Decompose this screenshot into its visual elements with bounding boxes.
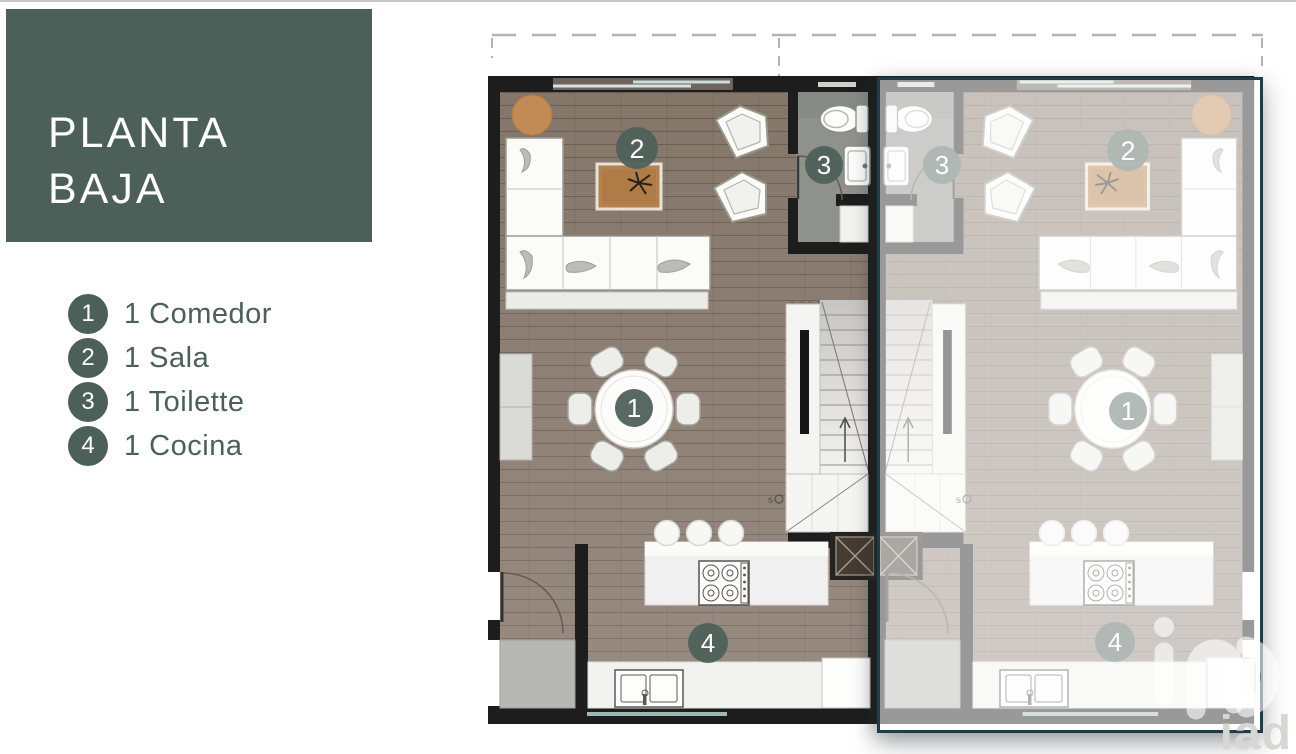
svg-text:s: s — [768, 495, 773, 506]
svg-text:3: 3 — [817, 150, 831, 180]
marker-cocina-left: 4 — [688, 623, 728, 663]
marker-comedor-left: 1 — [615, 389, 653, 427]
svg-text:4: 4 — [701, 628, 715, 658]
svg-text:2: 2 — [629, 134, 644, 164]
floor-plan-page: PLANTA BAJA 1 1 Comedor 2 1 Sala 3 1 Toi… — [0, 0, 1296, 754]
marker-sala-left: 2 — [616, 127, 658, 169]
marker-toilette-left: 3 — [805, 146, 843, 184]
svg-text:1: 1 — [627, 393, 641, 423]
lot-boundary-dashes — [492, 35, 1263, 76]
right-unit-selection-overlay — [877, 77, 1263, 733]
